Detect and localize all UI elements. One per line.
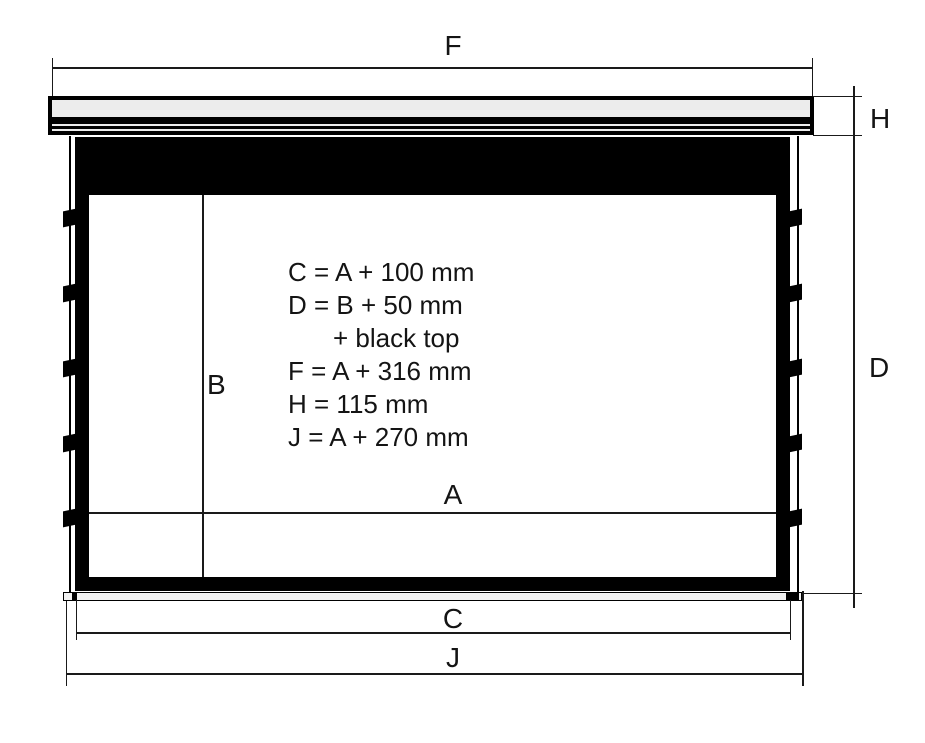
dimension-label-h: H — [870, 104, 890, 134]
f-dimension-line — [52, 67, 812, 69]
formula-block: C = A + 100 mm D = B + 50 mm + black top… — [288, 256, 474, 454]
casing-slot-stripe — [52, 126, 810, 129]
formula-d-continuation: + black top — [288, 322, 474, 355]
f-extension-line-right — [812, 58, 814, 96]
h-extension-line-top — [813, 96, 862, 98]
f-extension-line-left — [52, 58, 54, 96]
c-dimension-line — [76, 632, 790, 634]
tension-tab — [63, 509, 76, 528]
b-dimension-line — [202, 195, 204, 577]
tension-tab — [63, 209, 76, 228]
dimension-label-j: J — [446, 643, 460, 673]
tension-tab — [789, 209, 802, 228]
formula-h: H = 115 mm — [288, 388, 474, 421]
tension-tab — [63, 284, 76, 303]
formula-c: C = A + 100 mm — [288, 256, 474, 289]
formula-d: D = B + 50 mm — [288, 289, 474, 322]
tension-tab — [789, 284, 802, 303]
bottom-slat-bar — [63, 592, 802, 601]
formula-f: F = A + 316 mm — [288, 355, 474, 388]
screen-casing — [48, 96, 814, 135]
tension-tab — [789, 359, 802, 378]
tension-tab — [63, 434, 76, 453]
c-extension-line-left — [76, 600, 78, 640]
j-extension-line-right — [802, 591, 804, 686]
slat-end-mark-left — [72, 593, 77, 600]
tension-tab — [789, 509, 802, 528]
tension-tab — [789, 434, 802, 453]
slat-end-mark-right — [786, 593, 799, 600]
c-extension-line-right — [790, 600, 792, 640]
screen-dimension-diagram: F H D B A C = A + 100 mm D = B + 50 mm +… — [0, 0, 925, 743]
h-extension-line-bottom — [813, 135, 862, 137]
formula-j: J = A + 270 mm — [288, 421, 474, 454]
dimension-label-b: B — [207, 370, 226, 400]
dimension-label-d: D — [869, 353, 889, 383]
tension-tab — [63, 359, 76, 378]
dimension-label-a: A — [444, 480, 463, 510]
casing-roller-stripe — [52, 117, 810, 124]
h-d-dimension-line — [853, 86, 855, 608]
dimension-label-f: F — [444, 31, 461, 61]
dimension-label-c: C — [443, 604, 463, 634]
j-dimension-line — [66, 673, 803, 675]
a-dimension-line — [89, 512, 776, 514]
